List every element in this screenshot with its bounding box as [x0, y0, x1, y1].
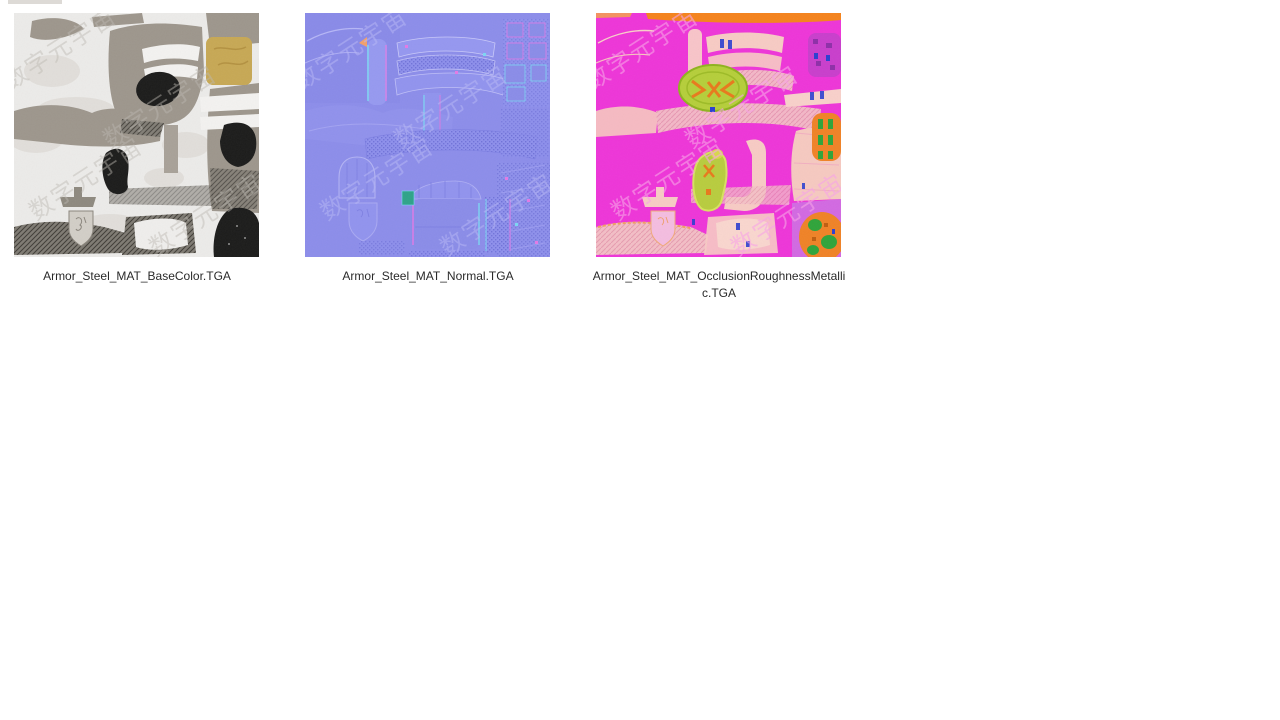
file-name-label[interactable]: Armor_Steel_MAT_BaseColor.TGA: [8, 268, 266, 285]
orm-texture-preview[interactable]: 数字元宇宙 数字元宇宙 数字元宇宙 数字元宇宙: [596, 13, 841, 257]
normal-map-texture-preview[interactable]: 数字元宇宙 数字元宇宙 数字元宇宙 数字元宇宙: [305, 13, 550, 257]
file-item-basecolor[interactable]: 数字元宇宙 数字元宇宙 数字元宇宙 数字元宇宙 Armor_Steel_MAT_…: [14, 13, 259, 285]
file-name-label[interactable]: Armor_Steel_MAT_OcclusionRoughnessMetall…: [590, 268, 848, 302]
basecolor-texture-preview[interactable]: 数字元宇宙 数字元宇宙 数字元宇宙 数字元宇宙: [14, 13, 259, 257]
file-item-normal[interactable]: 数字元宇宙 数字元宇宙 数字元宇宙 数字元宇宙 Armor_Steel_MAT_…: [305, 13, 550, 285]
file-name-label[interactable]: Armor_Steel_MAT_Normal.TGA: [299, 268, 557, 285]
texture-file-grid: 数字元宇宙 数字元宇宙 数字元宇宙 数字元宇宙 Armor_Steel_MAT_…: [0, 0, 1280, 720]
file-item-orm[interactable]: 数字元宇宙 数字元宇宙 数字元宇宙 数字元宇宙 Armor_Steel_MAT_…: [596, 13, 841, 302]
